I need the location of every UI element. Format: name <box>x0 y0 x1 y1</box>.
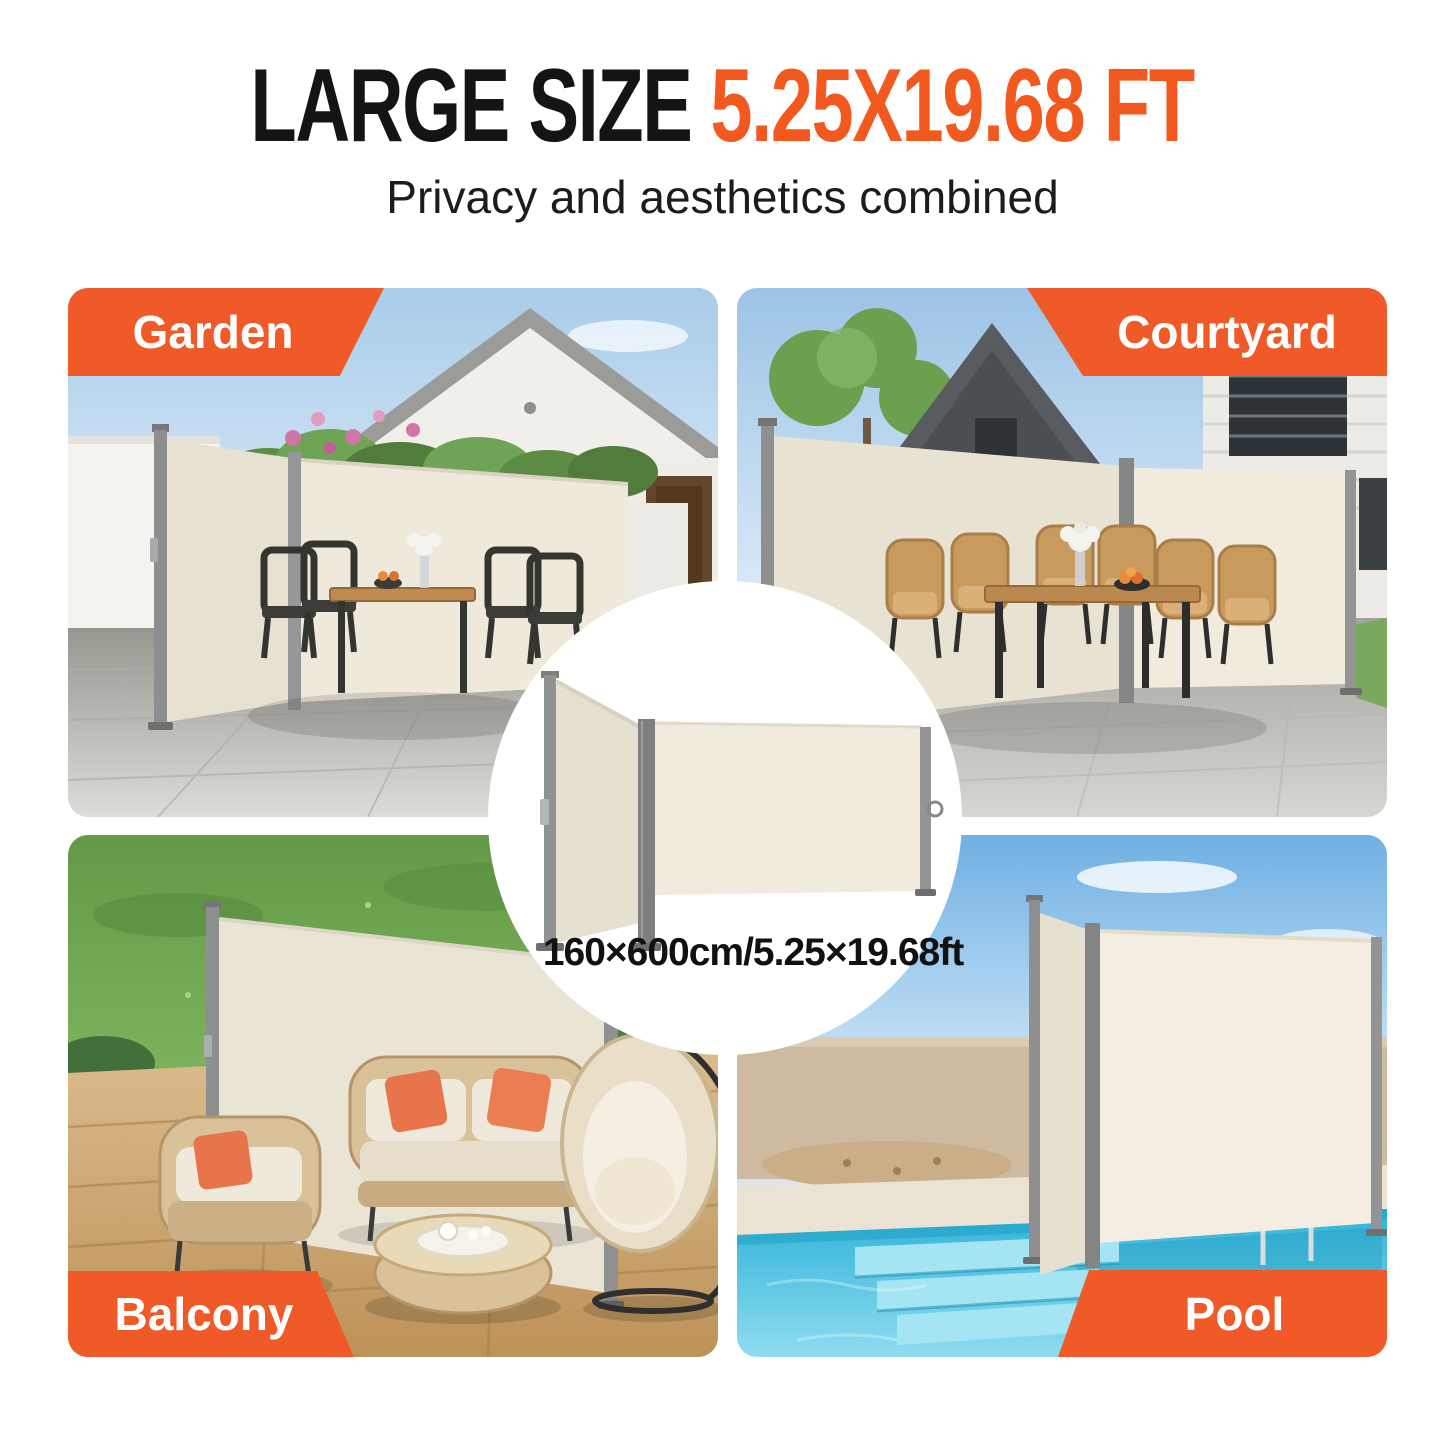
title-size-text: LARGE SIZE <box>251 48 692 164</box>
courtyard-label-banner: Courtyard <box>1027 288 1387 376</box>
page-title: LARGE SIZE5.25X19.68 FT <box>0 54 1445 158</box>
garden-label-banner: Garden <box>68 288 384 376</box>
product-dimension-badge: 160×600cm/5.25×19.68ft <box>488 581 962 1055</box>
courtyard-label: Courtyard <box>1117 309 1337 355</box>
balcony-label: Balcony <box>115 1291 294 1337</box>
product-infographic: LARGE SIZE5.25X19.68 FT Privacy and aest… <box>0 0 1445 1445</box>
product-illustration <box>488 581 962 1055</box>
page-subtitle: Privacy and aesthetics combined <box>0 172 1445 223</box>
pool-label: Pool <box>1185 1291 1285 1337</box>
balcony-label-banner: Balcony <box>68 1271 354 1357</box>
dimension-text: 160×600cm/5.25×19.68ft <box>516 931 990 975</box>
title-dimension-highlight: 5.25X19.68 FT <box>711 48 1194 164</box>
pool-label-banner: Pool <box>1058 1270 1387 1357</box>
garden-label: Garden <box>132 309 293 355</box>
